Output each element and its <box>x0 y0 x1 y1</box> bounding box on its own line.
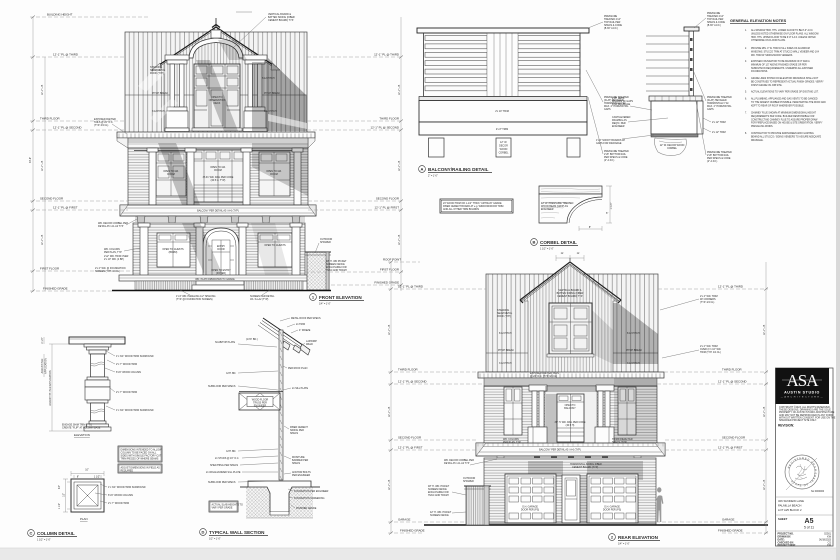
svg-text:ROOF (TYP): ROOF (TYP) <box>497 315 511 318</box>
svg-text:FOUNDATIONS.: FOUNDATIONS. <box>751 70 768 73</box>
svg-text:BEHIND ALL STUCCO / SIDING VEN: BEHIND ALL STUCCO / SIDING VENEERS TO AS… <box>751 135 822 138</box>
svg-text:SECOND FLOOR: SECOND FLOOR <box>40 197 63 201</box>
svg-text:DOOR PER (PS): DOOR PER (PS) <box>521 509 539 512</box>
svg-text:DETAIL A5 / A1-A2 TYP: DETAIL A5 / A1-A2 TYP <box>444 462 470 465</box>
svg-text:PITCH BREAK: PITCH BREAK <box>498 349 514 352</box>
svg-text:PROVIDE MIN. 4" W. TRIM AT ALL: PROVIDE MIN. 4" W. TRIM AT ALL SIDES OF … <box>751 47 810 50</box>
svg-text:8": 8" <box>589 226 591 229</box>
svg-text:GENERAL ELEVATION NOTES: GENERAL ELEVATION NOTES <box>730 18 787 23</box>
svg-text:12'-1" L/B: 12'-1" L/B <box>388 479 391 490</box>
svg-text:FIRST FLOOR: FIRST FLOOR <box>380 268 399 272</box>
svg-text:APPLICATION: APPLICATION <box>45 358 48 374</box>
svg-text:1 1/2": 1 1/2" <box>58 503 61 509</box>
svg-text:2'x 12" TRIM: 2'x 12" TRIM <box>712 131 726 134</box>
svg-text:THIRD FLOOR: THIRD FLOOR <box>40 117 60 121</box>
svg-text:1 1/2" = 1'-0": 1 1/2" = 1'-0" <box>37 539 51 542</box>
svg-text:ALL PLUMBING, APPLIANCE AND GA: ALL PLUMBING, APPLIANCE AND GAS VENTS TO… <box>751 98 818 101</box>
svg-text:D: D <box>202 530 205 535</box>
svg-text:FIRST FLOOR: FIRST FLOOR <box>40 267 59 271</box>
svg-text:THIRD FLOOR: THIRD FLOOR <box>379 117 399 121</box>
svg-text:12'-1" PL @ THIRD: 12'-1" PL @ THIRD <box>398 285 423 289</box>
svg-text:GYP. BD.: GYP. BD. <box>226 372 236 375</box>
svg-text:12'-1" PL @ FIRST: 12'-1" PL @ FIRST <box>375 206 400 210</box>
svg-text:REVISION:: REVISION: <box>778 424 794 428</box>
svg-text:12'-1" L/B: 12'-1" L/B <box>41 234 44 245</box>
svg-text:FINISHED GRADE: FINISHED GRADE <box>400 529 425 533</box>
svg-text:2x W/GALVANIZED SILL PLATE: 2x W/GALVANIZED SILL PLATE <box>206 471 241 474</box>
svg-text:FOR FIREPLACE BASED ON HOUSE &: FOR FIREPLACE BASED ON HOUSE & SITE ORIE… <box>751 122 823 125</box>
svg-text:2"x 7" WOOD TRIM: 2"x 7" WOOD TRIM <box>108 502 129 505</box>
svg-text:1/2" = 1'-0": 1/2" = 1'-0" <box>209 538 221 541</box>
svg-text:ASA: ASA <box>786 371 819 390</box>
svg-text:SHOWER: SHOWER <box>463 480 474 483</box>
svg-text:1"x 3/4" WOOD TRIM SURROUND: 1"x 3/4" WOOD TRIM SURROUND <box>116 409 154 412</box>
svg-text:THIRD FLOOR: THIRD FLOOR <box>398 368 418 372</box>
svg-text:DRAINAGE.: DRAINAGE. <box>751 139 764 142</box>
svg-text:8": 8" <box>77 476 79 479</box>
svg-text:FINISH GRADE ON JOB SITE.: FINISH GRADE ON JOB SITE. <box>751 84 783 87</box>
svg-text:GARAGE: GARAGE <box>722 518 734 522</box>
svg-text:FOUNDATION PER ENGINEER: FOUNDATION PER ENGINEER <box>294 490 329 493</box>
svg-text:PITCH BREAK: PITCH BREAK <box>264 92 280 95</box>
svg-text:@ 24" O.C. (TYP. 3/4 CL): @ 24" O.C. (TYP. 3/4 CL) <box>530 375 557 378</box>
svg-text:(40.5 H): (40.5 H) <box>566 424 575 427</box>
svg-text:PER ENGINEER: PER ENGINEER <box>292 474 310 477</box>
svg-text:SCREEN FENCE: SCREEN FENCE <box>430 514 449 517</box>
svg-text:HDR. HTS. UPPER FLOOR TO BE 6': HDR. HTS. UPPER FLOOR TO BE 6'-8" A.F.F.… <box>751 36 816 39</box>
svg-text:(B 36" A.F.F.): (B 36" A.F.F.) <box>604 27 618 30</box>
svg-text:SECOND FLOOR: SECOND FLOOR <box>722 436 745 440</box>
svg-text:12'-1" PL @ SECOND: 12'-1" PL @ SECOND <box>398 380 427 384</box>
svg-text:(40.5 in. TYP): (40.5 in. TYP) <box>211 179 226 182</box>
svg-text:TRIM (TYP. 4/4 CL): TRIM (TYP. 4/4 CL) <box>700 351 721 354</box>
svg-text:No 0000000: No 0000000 <box>811 490 825 493</box>
svg-text:COLUMN DETAIL: COLUMN DETAIL <box>37 531 75 536</box>
svg-text:ENGINEER: ENGINEER <box>541 208 554 211</box>
svg-text:GYP. BD.: GYP. BD. <box>226 450 236 453</box>
svg-text:CHIMNEY FLUE SHOWN AT MINIMUM: CHIMNEY FLUE SHOWN AT MINIMUM DIMENSIONA… <box>751 112 817 115</box>
svg-text:8:12 PITCH: 8:12 PITCH <box>262 77 275 80</box>
svg-text:(TYP. 3/4 CL): (TYP. 3/4 CL) <box>94 124 109 127</box>
svg-text:TRIM PIECES OF WHERE SEAMS: TRIM PIECES OF WHERE SEAMS <box>121 458 159 461</box>
svg-text:TO THE FEWEST NUMBER POSSIBLE.: TO THE FEWEST NUMBER POSSIBLE. PENETRATI… <box>751 101 826 104</box>
svg-text:12'-1" L/B: 12'-1" L/B <box>398 84 401 95</box>
svg-text:(TYP. @ FOUNDATION SCREEN): (TYP. @ FOUNDATION SCREEN) <box>176 298 213 301</box>
svg-text:12'-1" PL @ FIRST: 12'-1" PL @ FIRST <box>718 446 743 450</box>
svg-text:HVAC AND TRASH: HVAC AND TRASH <box>326 269 347 272</box>
svg-text:4" FRIEZE: 4" FRIEZE <box>299 329 311 332</box>
svg-text:CORBEL: CORBEL <box>499 152 510 155</box>
svg-text:12'-1" L/B: 12'-1" L/B <box>388 406 391 417</box>
svg-text:SCAB/TOP PLATE: SCAB/TOP PLATE <box>215 341 235 344</box>
svg-text:SHEET: SHEET <box>778 517 788 521</box>
svg-text:12'-1" L/B: 12'-1" L/B <box>398 234 401 245</box>
svg-text:— A R C H I T E C T U R E —: — A R C H I T E C T U R E — <box>781 396 824 399</box>
svg-text:2'x 10" WD. (4 BP): 2'x 10" WD. (4 BP) <box>104 258 124 261</box>
svg-text:6": 6" <box>606 212 608 215</box>
svg-text:2 1/4": 2 1/4" <box>41 337 44 343</box>
svg-text:SUBFLOOR PER SPECS: SUBFLOOR PER SPECS <box>208 481 236 484</box>
svg-text:6"x6" WOOD COLUMN: 6"x6" WOOD COLUMN <box>108 494 133 497</box>
svg-text:CORBEL DETAIL: CORBEL DETAIL <box>540 240 577 245</box>
svg-text:10": 10" <box>85 469 89 472</box>
svg-text:1 1/2" = 1'-0": 1 1/2" = 1'-0" <box>540 248 554 251</box>
svg-text:PREVAILING WINDS.: PREVAILING WINDS. <box>751 125 773 128</box>
svg-text:(TYP. 4/4 CL): (TYP. 4/4 CL) <box>700 301 715 304</box>
svg-text:10": 10" <box>63 493 66 497</box>
svg-text:2'x 8" TRIM: 2'x 8" TRIM <box>496 128 508 131</box>
svg-text:A: A <box>421 167 424 172</box>
svg-text:THIRD FLOOR: THIRD FLOOR <box>722 368 742 372</box>
svg-text:12'-1" L/B: 12'-1" L/B <box>41 84 44 95</box>
svg-text:WINDOWS. STUCCO TRIM AT STUCC: WINDOWS. STUCCO TRIM AT STUCCO WALL VENE… <box>751 50 820 53</box>
svg-text:METAL ROOF PER SPECS: METAL ROOF PER SPECS <box>291 317 321 320</box>
svg-text:SECOND FLOOR: SECOND FLOOR <box>398 436 421 440</box>
svg-text:ALL WINDOW HDR. HTS. LOWER FLO: ALL WINDOW HDR. HTS. LOWER FLOOR TO BE 8… <box>751 29 813 32</box>
svg-text:CREATE "FLIP" AT COLUMN BASE: CREATE "FLIP" AT COLUMN BASE <box>62 427 101 430</box>
svg-text:ENGINEER: ENGINEER <box>612 125 625 128</box>
svg-text:GAPS FOR DRAINAGE: GAPS FOR DRAINAGE <box>596 142 622 145</box>
svg-text:ROOF POINT: ROOF POINT <box>383 258 401 262</box>
svg-text:OTHERWISE ON FLOOR PLANS.: OTHERWISE ON FLOOR PLANS. <box>751 39 786 42</box>
svg-text:2'x 10" TRIM: 2'x 10" TRIM <box>495 110 509 113</box>
svg-text:FOUNDATION SCREENING: FOUNDATION SCREENING <box>294 497 325 500</box>
svg-text:WELD: WELD <box>306 343 313 346</box>
svg-text:1/4" = 1'-0": 1/4" = 1'-0" <box>319 303 331 306</box>
svg-text:2"x 7" WOOD TRIM: 2"x 7" WOOD TRIM <box>116 391 137 394</box>
svg-text:FOR DRAINAGE: FOR DRAINAGE <box>612 103 631 106</box>
svg-text:12'-1" PL @ FIRST: 12'-1" PL @ FIRST <box>53 206 78 210</box>
svg-text:2"x 7" WOOD TRIM: 2"x 7" WOOD TRIM <box>116 363 137 366</box>
svg-text:BALCONY/RAILING DETAIL: BALCONY/RAILING DETAIL <box>428 167 489 172</box>
svg-text:AUSTIN STUDIO: AUSTIN STUDIO <box>784 391 820 395</box>
svg-text:A5 / A1-A2 (TYP): A5 / A1-A2 (TYP) <box>250 298 269 301</box>
svg-text:A5: A5 <box>805 518 814 525</box>
svg-text:LOT A25 BLOCK 2: LOT A25 BLOCK 2 <box>778 508 802 512</box>
svg-text:ROOM: ROOM <box>214 169 221 172</box>
svg-text:2x TRIM: 2x TRIM <box>296 323 305 326</box>
svg-text:CONSTRUCTING CHIMNEY FLUE TO A: CONSTRUCTING CHIMNEY FLUE TO ASSURE PROP… <box>751 118 818 121</box>
svg-text:12'-1" L/B: 12'-1" L/B <box>763 324 766 335</box>
svg-text:AND ALL OTHER TRIM BOARDS: AND ALL OTHER TRIM BOARDS <box>443 208 479 211</box>
svg-text:12'-1" PL @ SECOND: 12'-1" PL @ SECOND <box>370 126 399 130</box>
svg-text:SPECS: SPECS <box>292 462 301 465</box>
svg-text:PER PLAN, TYP: PER PLAN, TYP <box>104 251 122 254</box>
svg-text:3:12 PITCH: 3:12 PITCH <box>499 362 512 365</box>
svg-text:SHEATHING PER SPECS: SHEATHING PER SPECS <box>210 464 239 467</box>
svg-text:VARY PER GRADE: VARY PER GRADE <box>212 507 233 510</box>
svg-text:FINISHED GRADE: FINISHED GRADE <box>374 281 399 285</box>
svg-text:6"x6" WOOD COLUMN: 6"x6" WOOD COLUMN <box>116 371 141 374</box>
svg-text:BUILDING HEIGHT: BUILDING HEIGHT <box>47 13 73 17</box>
svg-text:40'-6": 40'-6" <box>29 157 32 163</box>
svg-text:8:12 PITCH: 8:12 PITCH <box>499 332 512 335</box>
svg-text:PLAN: PLAN <box>80 517 88 521</box>
svg-text:GAPS: GAPS <box>707 108 714 111</box>
svg-text:12'-1" PL @ THIRD: 12'-1" PL @ THIRD <box>53 53 78 57</box>
svg-text:2" = 1'-0": 2" = 1'-0" <box>428 175 438 178</box>
svg-text:REQUIRED: REQUIRED <box>121 470 134 473</box>
svg-text:UNLESS NOTED OTHERWISE ON FLOO: UNLESS NOTED OTHERWISE ON FLOOR PLANS. A… <box>751 32 820 35</box>
svg-text:B: B <box>533 240 536 245</box>
svg-text:12'-1" PL @ THIRD: 12'-1" PL @ THIRD <box>718 285 743 289</box>
svg-text:ROOF (TYP): ROOF (TYP) <box>150 72 164 75</box>
svg-text:WD. PLATFORM/DOWN TO GRADE: WD. PLATFORM/DOWN TO GRADE <box>195 278 235 281</box>
svg-text:12'-1" L/B: 12'-1" L/B <box>763 479 766 490</box>
svg-text:SPECS (TYP): SPECS (TYP) <box>612 441 627 444</box>
svg-text:12'-1" PL @ SECOND: 12'-1" PL @ SECOND <box>53 126 82 130</box>
svg-text:SHOWER: SHOWER <box>320 241 331 244</box>
svg-text:5 of 11: 5 of 11 <box>804 526 814 530</box>
svg-text:12'-1" L/B: 12'-1" L/B <box>41 160 44 171</box>
svg-text:FINISHED GRADE: FINISHED GRADE <box>43 287 68 291</box>
svg-text:SPECIFIED PROJECT SITE ONLY.: SPECIFIED PROJECT SITE ONLY. <box>779 419 817 422</box>
svg-text:MINIMUM OF 1/2" ABOVE FINISHED: MINIMUM OF 1/2" ABOVE FINISHED GRADE OR … <box>751 63 807 66</box>
svg-text:1'-1/4": 1'-1/4" <box>610 202 613 209</box>
svg-text:12'-1" L/B: 12'-1" L/B <box>763 406 766 417</box>
svg-text:ELEVATION: ELEVATION <box>74 433 90 437</box>
svg-text:CONTRACTOR TO PROVIDE RAINSCRE: CONTRACTOR TO PROVIDE RAINSCREEN AND FLA… <box>751 132 814 135</box>
svg-text:TYPICAL WALL SECTION: TYPICAL WALL SECTION <box>209 530 265 535</box>
svg-text:(B 36" A.F.F.): (B 36" A.F.F.) <box>707 24 721 27</box>
svg-text:PALMILLA BEACH: PALMILLA BEACH <box>778 504 801 508</box>
svg-text:C: C <box>30 531 33 536</box>
svg-text:(BDRM): (BDRM) <box>169 251 178 254</box>
svg-text:(2" A.F.F.): (2" A.F.F.) <box>707 160 717 163</box>
svg-text:REQUIREMENTS PER CODE. BUILDER: REQUIREMENTS PER CODE. BUILDER RESPONSIB… <box>751 116 815 118</box>
svg-text:CEMENT BOARD) TYP.: CEMENT BOARD) TYP. <box>557 295 583 298</box>
svg-text:DOOR PER (PS): DOOR PER (PS) <box>603 509 621 512</box>
svg-text:1/4" = 1'-0": 1/4" = 1'-0" <box>618 543 630 546</box>
svg-text:BALCONY: BALCONY <box>564 407 576 410</box>
svg-text:2'x 12" TRIM: 2'x 12" TRIM <box>712 121 726 124</box>
svg-text:PER ROOF PLAN: PER ROOF PLAN <box>288 367 308 370</box>
svg-text:DETAIL A5 / A1-A2 TYP: DETAIL A5 / A1-A2 TYP <box>98 225 124 228</box>
svg-text:12'-1" L/B: 12'-1" L/B <box>388 324 391 335</box>
svg-text:(GYP. BD.): (GYP. BD.) <box>246 338 258 341</box>
svg-text:HVAC AND TRASH: HVAC AND TRASH <box>428 494 449 497</box>
svg-text:ENGINEER: ENGINEER <box>254 405 267 408</box>
svg-text:GAPS: GAPS <box>604 108 611 111</box>
svg-text:WD. TRIM AT SIDING/WOOD VENEER: WD. TRIM AT SIDING/WOOD VENEERS. <box>751 54 793 57</box>
svg-text:12'-1" PL @ SECOND: 12'-1" PL @ SECOND <box>718 380 747 384</box>
svg-text:DOOR: DOOR <box>217 248 224 251</box>
svg-text:12'-1" PL @ FIRST: 12'-1" PL @ FIRST <box>398 446 423 450</box>
svg-text:EXPOSED FOUNDATION TO BE MAXIM: EXPOSED FOUNDATION TO BE MAXIMUM OF 8" A… <box>751 60 810 63</box>
svg-text:PITCH BREAK: PITCH BREAK <box>152 92 168 95</box>
svg-text:SECOND FLOOR: SECOND FLOOR <box>376 197 399 201</box>
svg-text:SUBDIVISION REQUIREMENTS. UNDE: SUBDIVISION REQUIREMENTS. UNDERPIN ALL E… <box>751 67 814 70</box>
svg-text:REAR ELEVATION: REAR ELEVATION <box>618 535 659 540</box>
svg-text:1"x 3/4" WOOD TRIM SURROUND: 1"x 3/4" WOOD TRIM SURROUND <box>116 355 154 358</box>
svg-text:3:12 PITCH: 3:12 PITCH <box>152 110 165 113</box>
svg-text:CEMENT BOARD) TYP.: CEMENT BOARD) TYP. <box>268 19 294 22</box>
svg-text:KEPT TO REAR OF ROOF WHEREVER: KEPT TO REAR OF ROOF WHEREVER POSSIBLE. <box>751 104 805 107</box>
svg-text:(2" A.F.F.): (2" A.F.F.) <box>604 159 614 162</box>
svg-text:CEMENT BOARD (TYP): CEMENT BOARD (TYP) <box>572 466 598 469</box>
svg-text:BALCONY PER DETAIL A5 / A-6 (: BALCONY PER DETAIL A5 / A-6 (TYP) <box>197 210 239 213</box>
svg-text:SPECS: SPECS <box>290 432 299 435</box>
svg-text:PROJECT MGR:: PROJECT MGR: <box>778 544 797 547</box>
svg-text:FINISHED GRADE: FINISHED GRADE <box>296 507 317 510</box>
svg-text:BE CONSTRUED TO REPRESENT ACTU: BE CONSTRUED TO REPRESENT ACTUAL FINISH … <box>751 80 824 83</box>
svg-text:1"x 3/4" WOOD TRIM SURROUND: 1"x 3/4" WOOD TRIM SURROUND <box>108 486 146 489</box>
svg-text:3:12 PITCH: 3:12 PITCH <box>264 110 277 113</box>
svg-text:ADJUST HT. PER APPLICATION: ADJUST HT. PER APPLICATION <box>49 370 52 406</box>
svg-text:SUBFLOOR PER SPECS: SUBFLOOR PER SPECS <box>208 385 236 388</box>
svg-text:FRONT ELEVATION: FRONT ELEVATION <box>319 295 362 300</box>
svg-text:BALCONY PER DETAIL A5 / A-6: BALCONY PER DETAIL A5 / A-6 (TYP) <box>539 449 581 452</box>
svg-text:ACTUAL ELEVATIONS TO VARY PER: ACTUAL ELEVATIONS TO VARY PER GRADE OF E… <box>751 91 819 94</box>
svg-text:GRADE LINES SHOWN ON ELEVATION: GRADE LINES SHOWN ON ELEVATION DRAWINGS … <box>751 77 819 80</box>
svg-text:12'-1" L/B: 12'-1" L/B <box>398 160 401 171</box>
svg-text:SCREEN (TYP. 4/4 CL): SCREEN (TYP. 4/4 CL) <box>95 270 120 273</box>
svg-text:1 1/2": 1 1/2" <box>94 476 100 479</box>
svg-text:326 SUNDEW LANE: 326 SUNDEW LANE <box>778 499 804 503</box>
svg-text:2x SILL PLATE: 2x SILL PLATE <box>292 387 308 390</box>
svg-text:PER PLAN, TYP: PER PLAN, TYP <box>503 441 521 444</box>
svg-text:CORBEL: CORBEL <box>667 147 678 150</box>
svg-text:12'-1" PL @ THIRD: 12'-1" PL @ THIRD <box>374 53 399 57</box>
svg-text:FINISHED GRADE: FINISHED GRADE <box>718 529 743 533</box>
svg-text:2x STUDS @ 16" O.C.: 2x STUDS @ 16" O.C. <box>215 457 239 460</box>
svg-text:GARAGE: GARAGE <box>398 518 410 522</box>
svg-text:3/4": 3/4" <box>58 485 61 489</box>
